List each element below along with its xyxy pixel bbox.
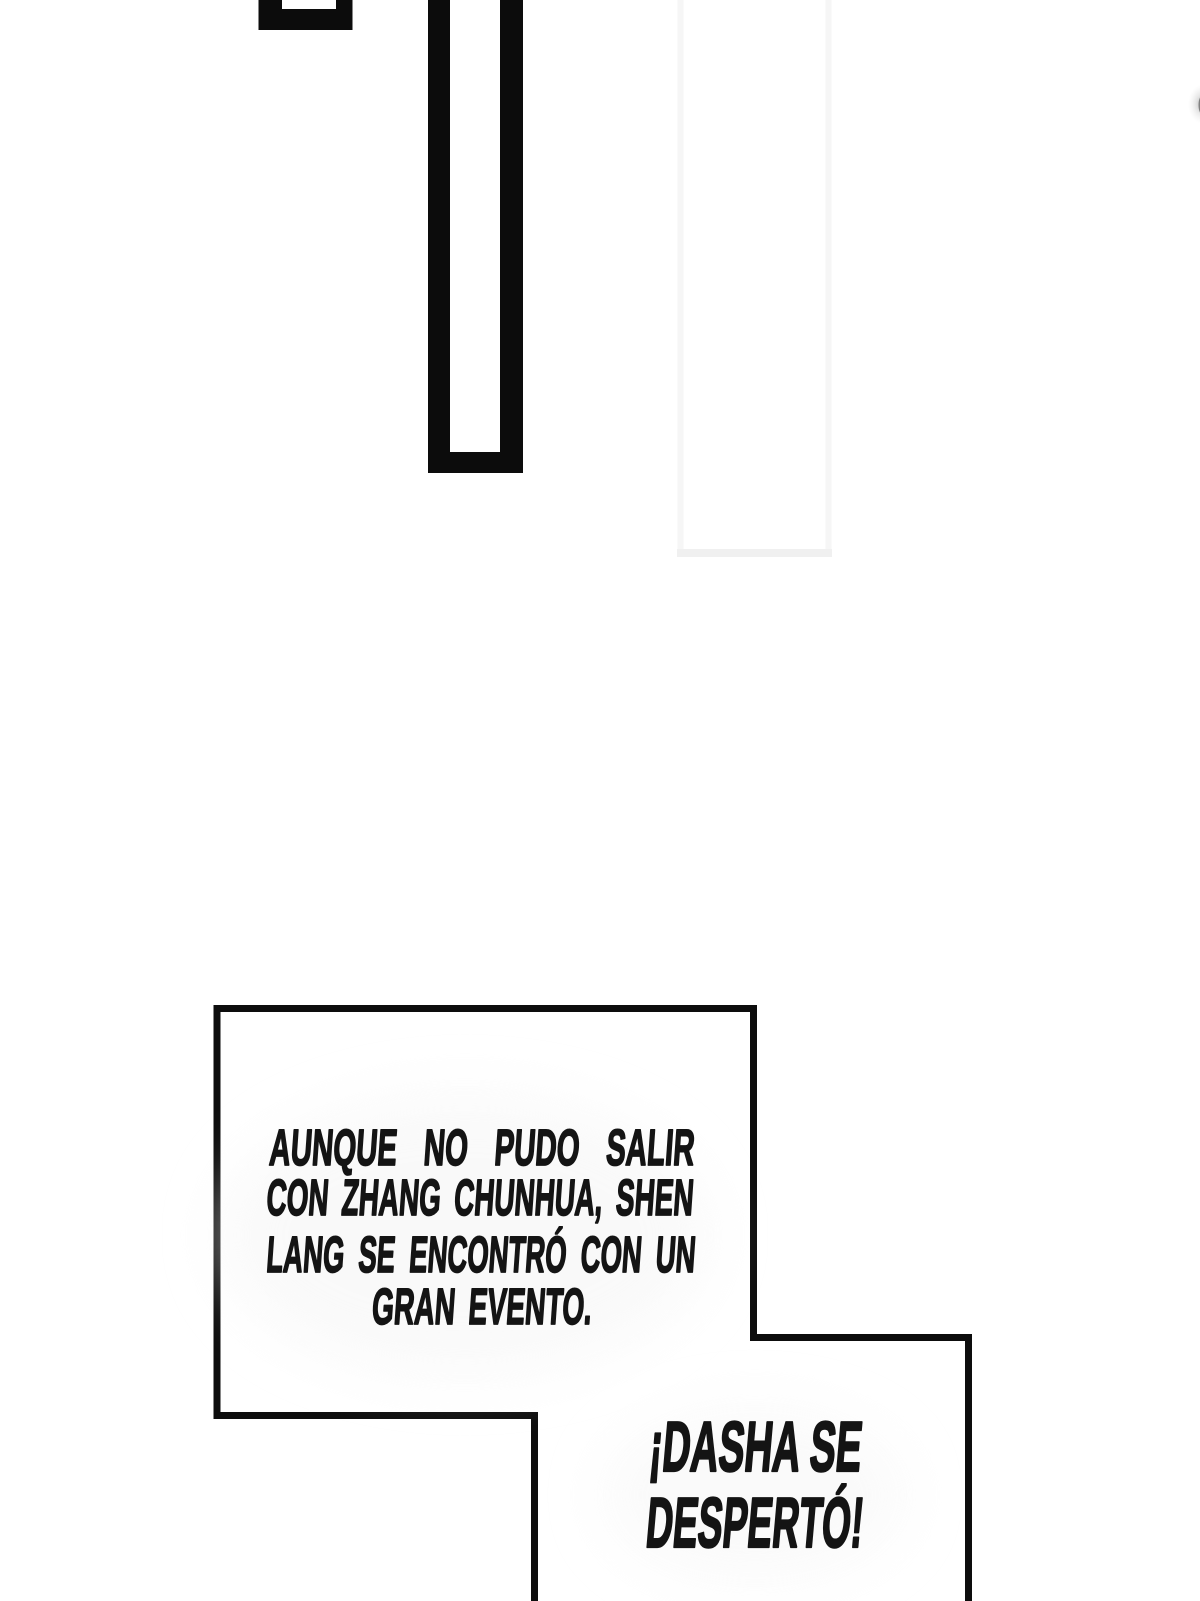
- svg-text:AUNQUE NO PUDO SALIR: AUNQUE NO PUDO SALIR: [268, 1119, 697, 1176]
- svg-text:DESPERTÓ!: DESPERTÓ!: [643, 1484, 867, 1563]
- svg-text:¡DASHA SE: ¡DASHA SE: [647, 1408, 866, 1487]
- svg-text:CON ZHANG CHUNHUA, SHEN: CON ZHANG CHUNHUA, SHEN: [265, 1169, 696, 1226]
- svg-text:LANG SE ENCONTRÓ CON UN: LANG SE ENCONTRÓ CON UN: [265, 1226, 698, 1283]
- svg-text:GRAN EVENTO.: GRAN EVENTO.: [370, 1278, 594, 1335]
